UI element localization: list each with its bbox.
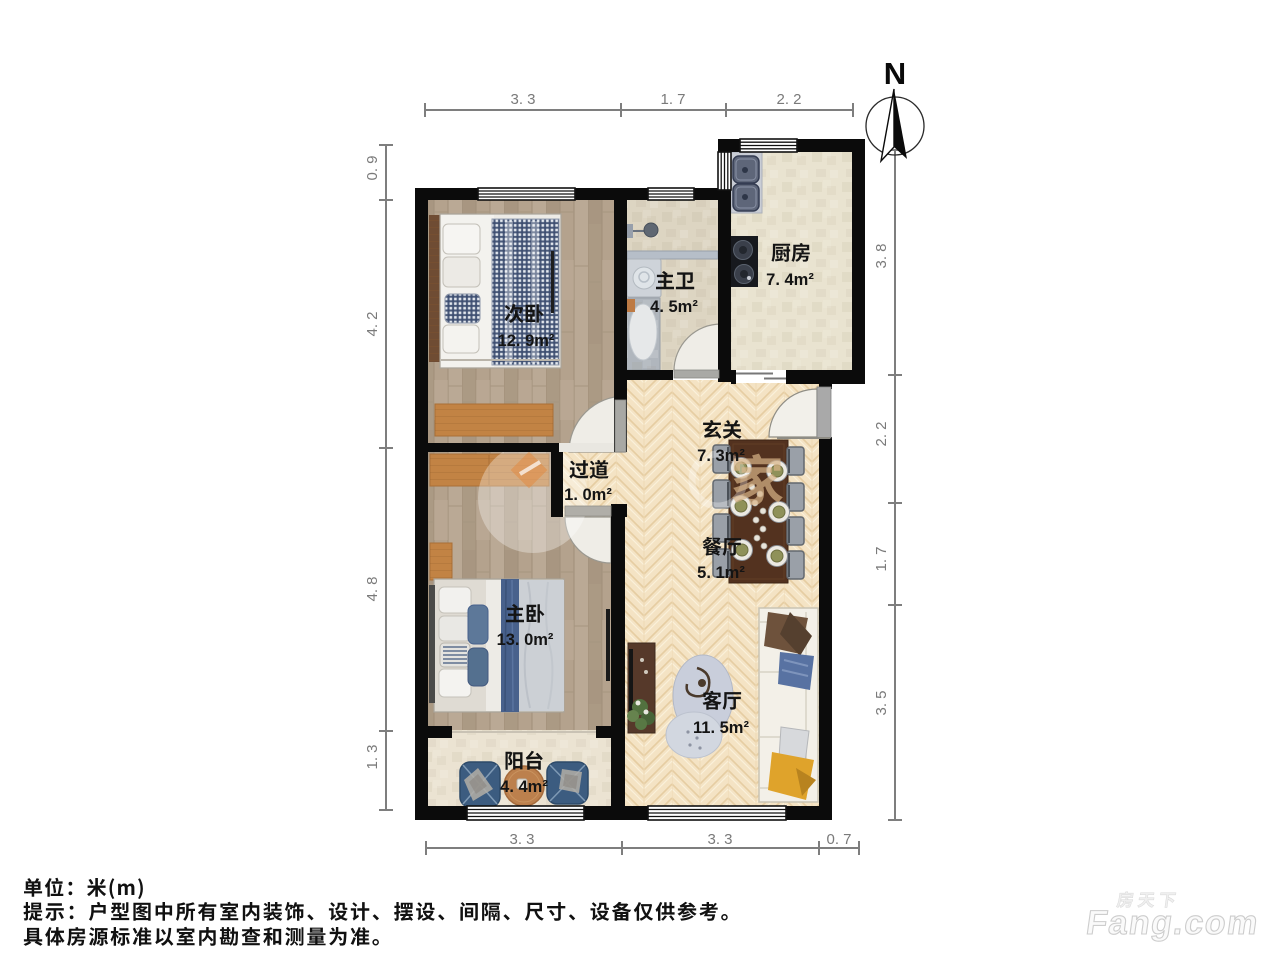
svg-text:11. 5m²: 11. 5m² [693,719,749,737]
svg-text:0. 7: 0. 7 [826,831,851,848]
svg-text:0. 9: 0. 9 [364,155,381,180]
svg-text:1. 7: 1. 7 [660,91,685,108]
svg-text:1. 7: 1. 7 [873,546,890,571]
svg-text:1. 0m²: 1. 0m² [564,486,612,504]
svg-text:1. 3: 1. 3 [364,744,381,769]
svg-text:2. 2: 2. 2 [776,91,801,108]
svg-text:4. 2: 4. 2 [364,311,381,336]
svg-text:3. 5: 3. 5 [873,690,890,715]
svg-text:4. 5m²: 4. 5m² [650,298,698,316]
svg-text:3. 3: 3. 3 [707,831,732,848]
svg-text:3. 8: 3. 8 [873,243,890,268]
svg-text:N: N [884,56,906,91]
svg-text:3. 3: 3. 3 [509,831,534,848]
svg-text:4. 8: 4. 8 [364,576,381,601]
svg-text:7. 3m²: 7. 3m² [697,447,745,465]
svg-text:12. 9m²: 12. 9m² [498,332,555,350]
svg-text:2. 2: 2. 2 [873,421,890,446]
svg-text:4. 4m²: 4. 4m² [500,778,548,796]
svg-text:13. 0m²: 13. 0m² [497,631,554,649]
svg-text:5. 1m²: 5. 1m² [697,564,745,582]
svg-text:Fang.com: Fang.com [1084,904,1262,942]
svg-text:3. 3: 3. 3 [510,91,535,108]
svg-text:7. 4m²: 7. 4m² [766,271,814,289]
